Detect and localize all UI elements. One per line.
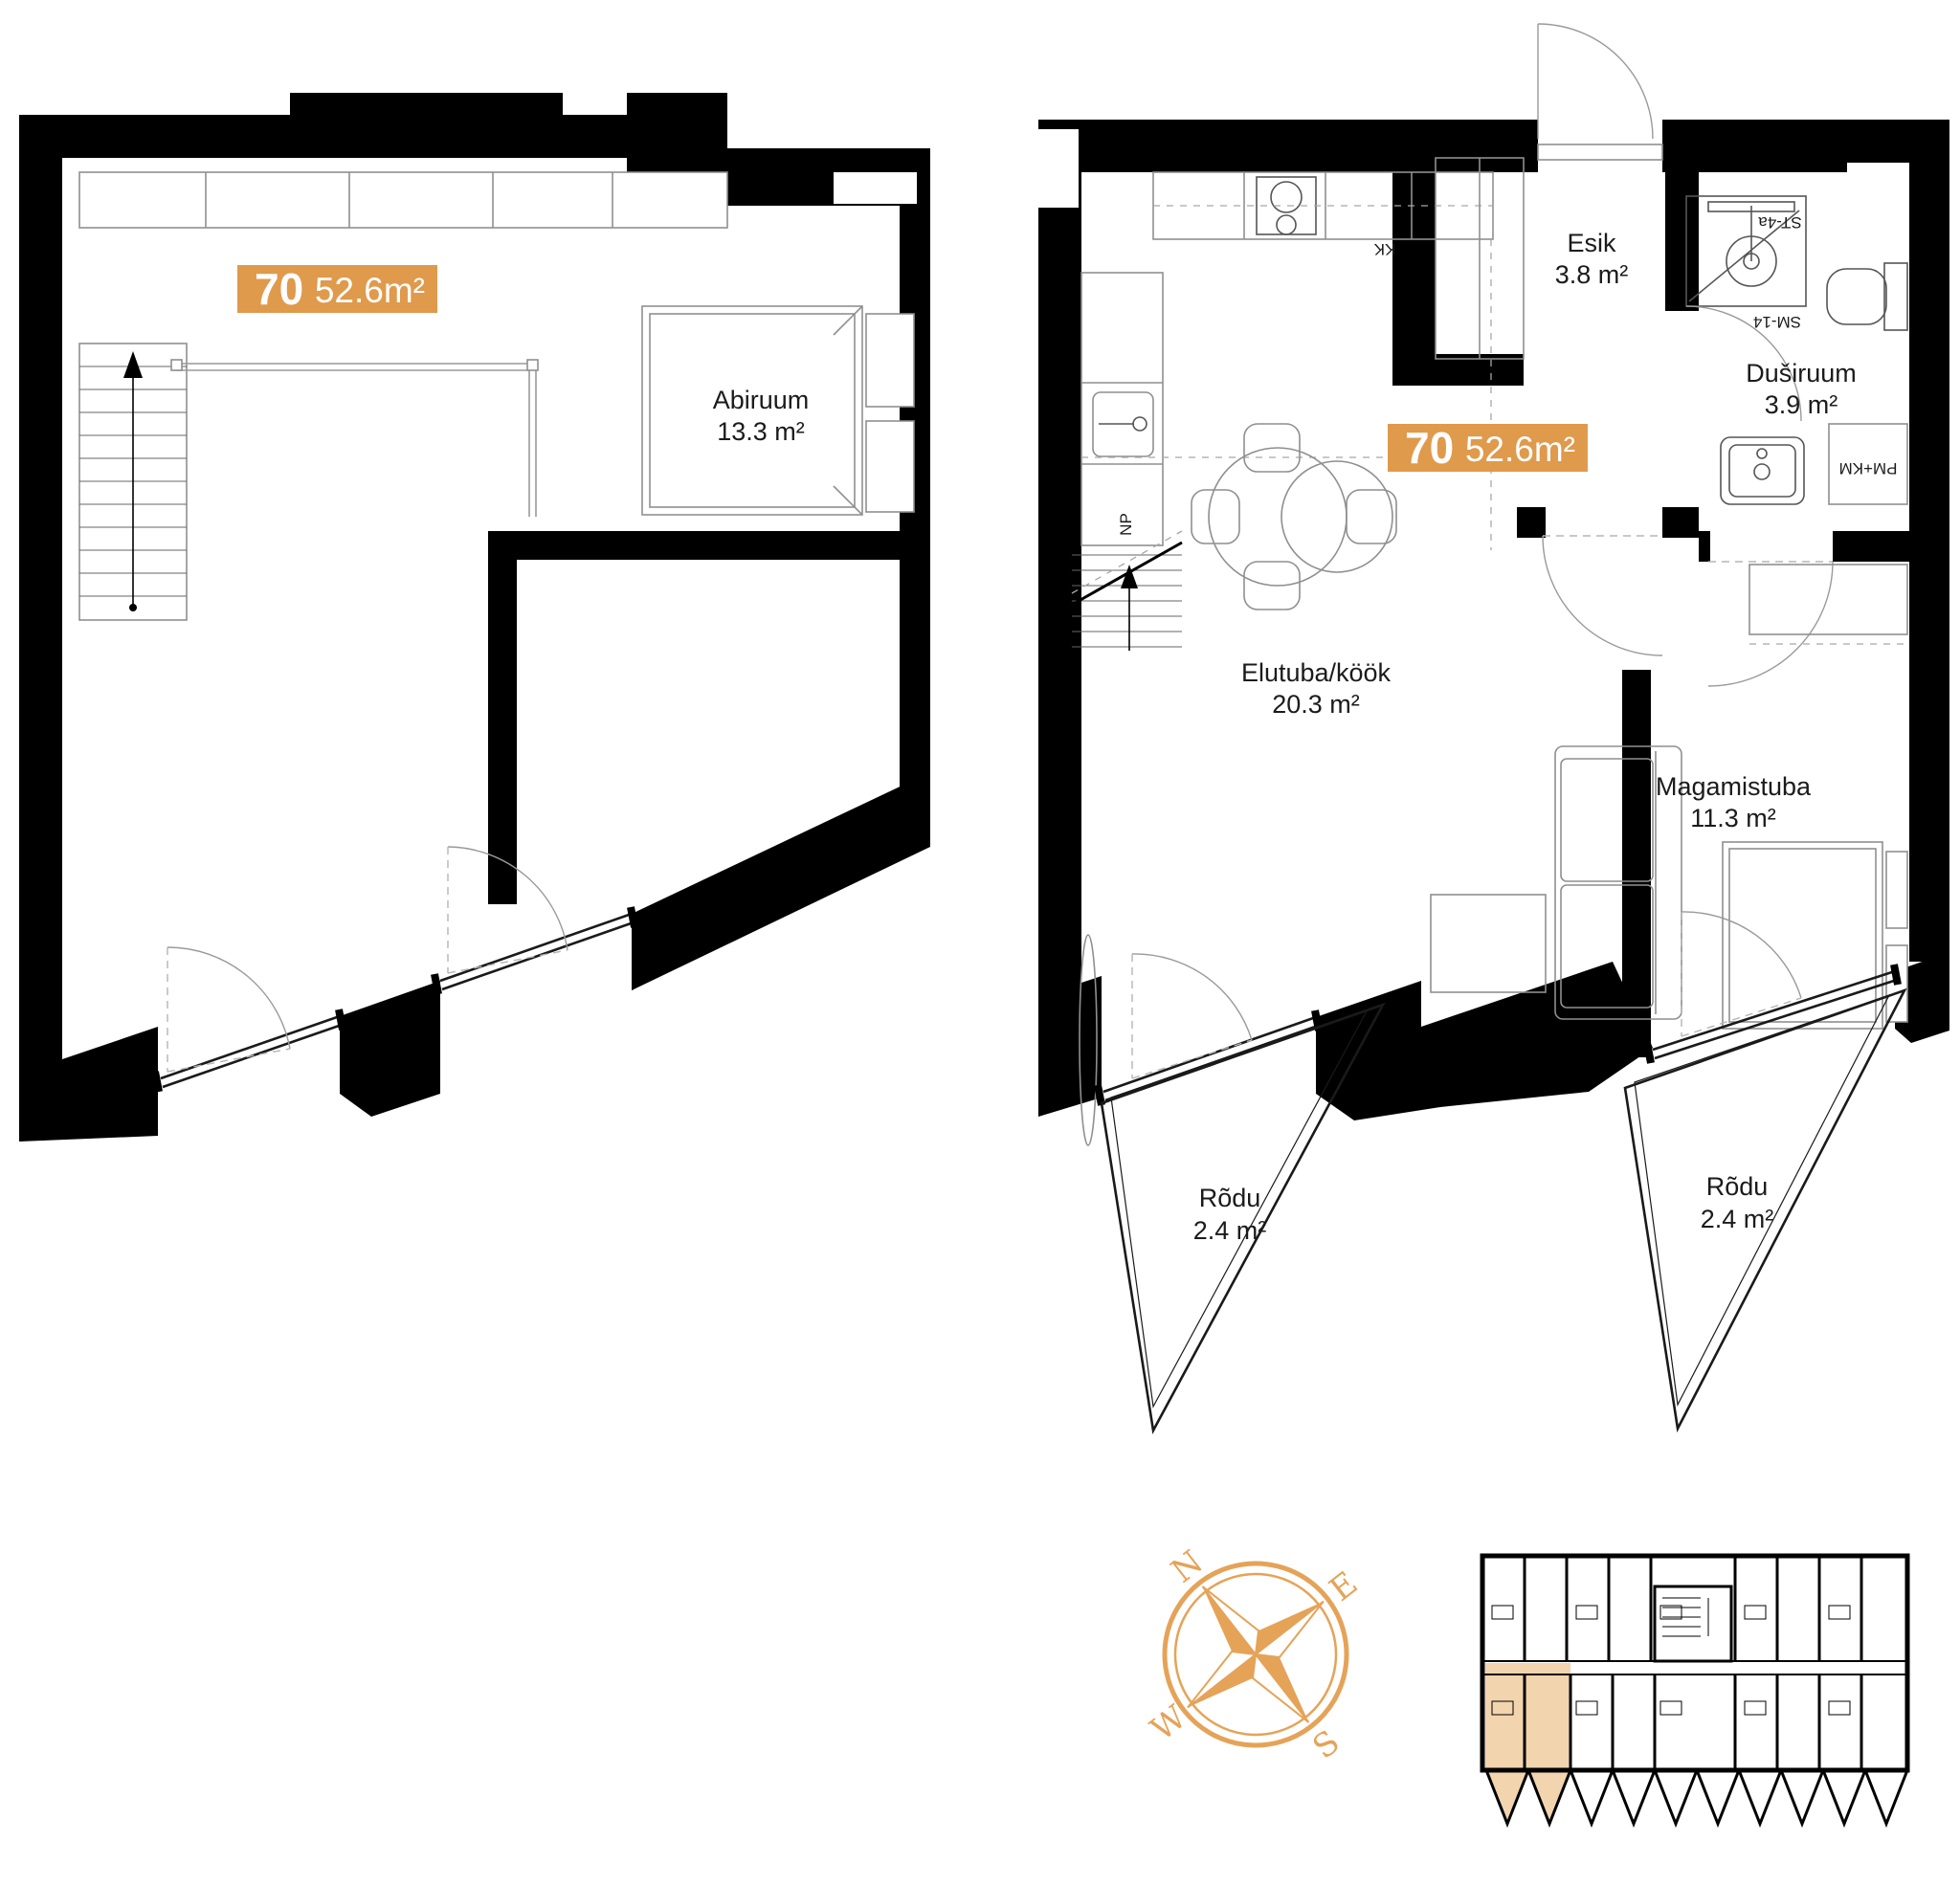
main-badge-number: 70 xyxy=(1405,423,1454,473)
bedroom-wardrobe xyxy=(1749,565,1907,644)
compass-west-label: W xyxy=(1144,1698,1193,1749)
dusiruum-name: Duširuum xyxy=(1746,359,1857,388)
upper-walls xyxy=(19,93,930,1142)
rodu1-name: Rõdu xyxy=(1199,1184,1261,1212)
washer-dryer: PM+KM xyxy=(1829,424,1907,504)
shower-code-label: ST-4a xyxy=(1758,213,1802,232)
compass-north-label: N xyxy=(1165,1543,1211,1591)
esik-area: 3.8 m² xyxy=(1555,260,1629,289)
stair-core xyxy=(1655,1586,1731,1661)
entrance-door xyxy=(1538,24,1662,160)
upper-balcony-door-1 xyxy=(155,947,343,1092)
kitchen-code-label: KK xyxy=(1373,240,1395,258)
rodu2-area: 2.4 m² xyxy=(1701,1205,1774,1233)
compass-rose: N E S W xyxy=(1144,1542,1369,1767)
upper-apartment-badge: 70 52.6m² xyxy=(237,264,437,314)
main-stairs-icon xyxy=(1072,531,1182,651)
bedroom-bed xyxy=(1723,842,1907,1029)
kitchen-counter: KK xyxy=(1153,172,1493,258)
bedroom-door xyxy=(1708,562,1833,686)
floorplan-sheet: 70 52.6m² Abiruum 13.3 m² xyxy=(0,0,1960,1885)
dusiruum-area: 3.9 m² xyxy=(1765,390,1838,419)
upper-void-railing xyxy=(171,360,538,517)
magamistuba-name: Magamistuba xyxy=(1656,772,1812,801)
elutuba-area: 20.3 m² xyxy=(1272,690,1360,719)
toilet xyxy=(1827,263,1907,330)
upper-wardrobe-row xyxy=(79,172,727,228)
hallway-closet xyxy=(1436,158,1524,359)
esik-name: Esik xyxy=(1567,229,1616,257)
elutuba-name: Elutuba/köök xyxy=(1241,658,1392,687)
esik-living-door xyxy=(1543,536,1662,655)
rodu1-area: 2.4 m² xyxy=(1193,1216,1267,1245)
main-apartment-badge: 70 52.6m² xyxy=(1388,423,1588,473)
washbasin xyxy=(1721,437,1804,504)
coffee-table xyxy=(1431,895,1546,992)
upper-badge-area: 52.6m² xyxy=(315,271,425,310)
upper-stairs-icon xyxy=(79,344,187,620)
living-balcony-door xyxy=(1098,954,1319,1105)
upper-room-name: Abiruum xyxy=(713,386,810,414)
main-badge-area: 52.6m² xyxy=(1465,430,1575,469)
main-walls xyxy=(1038,120,1949,1120)
washer-code-label: PM+KM xyxy=(1839,459,1898,477)
np-code-label: NP xyxy=(1117,513,1135,536)
main-floor-plan: KK NP ST-4a SM-14 PM+KM xyxy=(1038,14,1952,1450)
rodu2-name: Rõdu xyxy=(1706,1172,1769,1201)
upper-balcony-door-2 xyxy=(434,847,635,994)
module-code-label: SM-14 xyxy=(1753,313,1801,331)
upper-room-area: 13.3 m² xyxy=(717,417,805,446)
shower-enclosure: ST-4a xyxy=(1686,196,1806,306)
unit-dividers xyxy=(1525,1556,1861,1770)
bedroom-balcony-door xyxy=(1647,912,1898,1063)
upper-floor-plan: 70 52.6m² Abiruum 13.3 m² xyxy=(19,91,933,1163)
upper-badge-number: 70 xyxy=(255,264,303,314)
building-overview-map xyxy=(1479,1548,1914,1830)
magamistuba-area: 11.3 m² xyxy=(1690,804,1776,832)
compass-south-label: S xyxy=(1305,1723,1347,1767)
dining-table xyxy=(1192,424,1396,610)
